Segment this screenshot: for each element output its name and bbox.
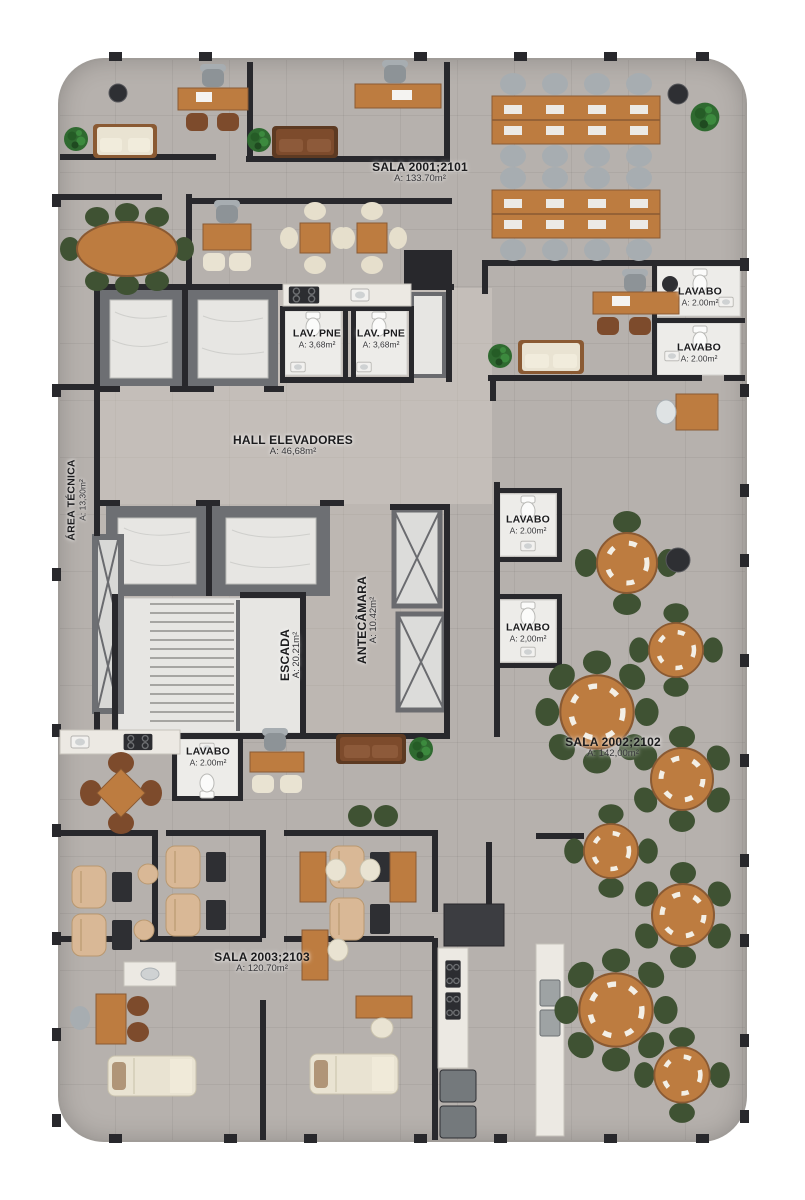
office-desk-topmid — [355, 60, 441, 108]
cafe-tables-4set — [280, 202, 407, 274]
square-table-4chairs — [80, 752, 162, 834]
kitchen-counter-west — [60, 730, 180, 754]
room-label-lavabo-sw: LAVABOA: 2.00m² — [186, 746, 230, 767]
green-chair-pair — [348, 805, 398, 827]
plant — [409, 737, 433, 761]
room-label-lav-pne-1: LAV. PNEA: 3,68m² — [293, 328, 341, 349]
sofa-brown-core-south — [336, 734, 406, 764]
stair-escada — [118, 598, 302, 733]
plant — [488, 344, 512, 368]
kitchenette-counter — [283, 284, 411, 306]
room-label-antecamara: ANTECÂMARAA: 10.42m² — [356, 576, 380, 664]
desk-clinic-west — [70, 994, 149, 1044]
room-label-lavabo-mid-1: LAVABOA: 2.00m² — [506, 514, 550, 535]
office-desk-topleft — [178, 64, 248, 131]
room-label-lavabo-ne-2: LAVABOA: 2.00m² — [677, 342, 721, 363]
room-label-sala-2002: SALA 2002;2102A: 142,00m² — [565, 736, 661, 760]
desk-small-meeting — [203, 200, 251, 271]
plant — [691, 103, 720, 132]
floor-plan: SALA 2001;2101A: 133.70m² LAVABOA: 2.00m… — [0, 0, 805, 1200]
room-label-escada: ESCADAA: 20.21m² — [279, 629, 303, 681]
side-table-round — [668, 84, 688, 104]
kitchen-south — [438, 904, 564, 1138]
room-label-lavabo-mid-2: LAVABOA: 2,00m² — [506, 622, 550, 643]
bench-desks-2 — [492, 167, 660, 261]
plant — [64, 127, 88, 151]
meeting-table-oval — [60, 203, 194, 295]
room-label-sala-2001: SALA 2001;2101A: 133.70m² — [372, 161, 468, 185]
bench-desks-1 — [492, 73, 660, 167]
room-label-lavabo-ne-1: LAVABOA: 2.00m² — [678, 286, 722, 307]
room-label-sala-2003: SALA 2003;2103A: 120.70m² — [214, 951, 310, 975]
room-label-area-tecnica: ÁREA TÉCNICAA: 13,30m² — [66, 459, 87, 540]
treatment-bed-1 — [108, 1056, 196, 1096]
sink-counter-clinic — [124, 962, 176, 986]
desk-right-edge — [656, 394, 718, 430]
sofa-cream-topleft — [93, 124, 157, 158]
restaurant-tables — [535, 511, 735, 1123]
treatment-bed-2 — [310, 1054, 398, 1094]
side-table-round — [109, 84, 127, 102]
sofa-brown-topmid — [272, 126, 338, 158]
plant — [247, 128, 271, 152]
room-label-hall-elevadores: HALL ELEVADORESA: 46,68m² — [233, 434, 353, 458]
room-label-lav-pne-2: LAV. PNEA: 3,68m² — [357, 328, 405, 349]
sofa-cream-right — [518, 340, 584, 374]
